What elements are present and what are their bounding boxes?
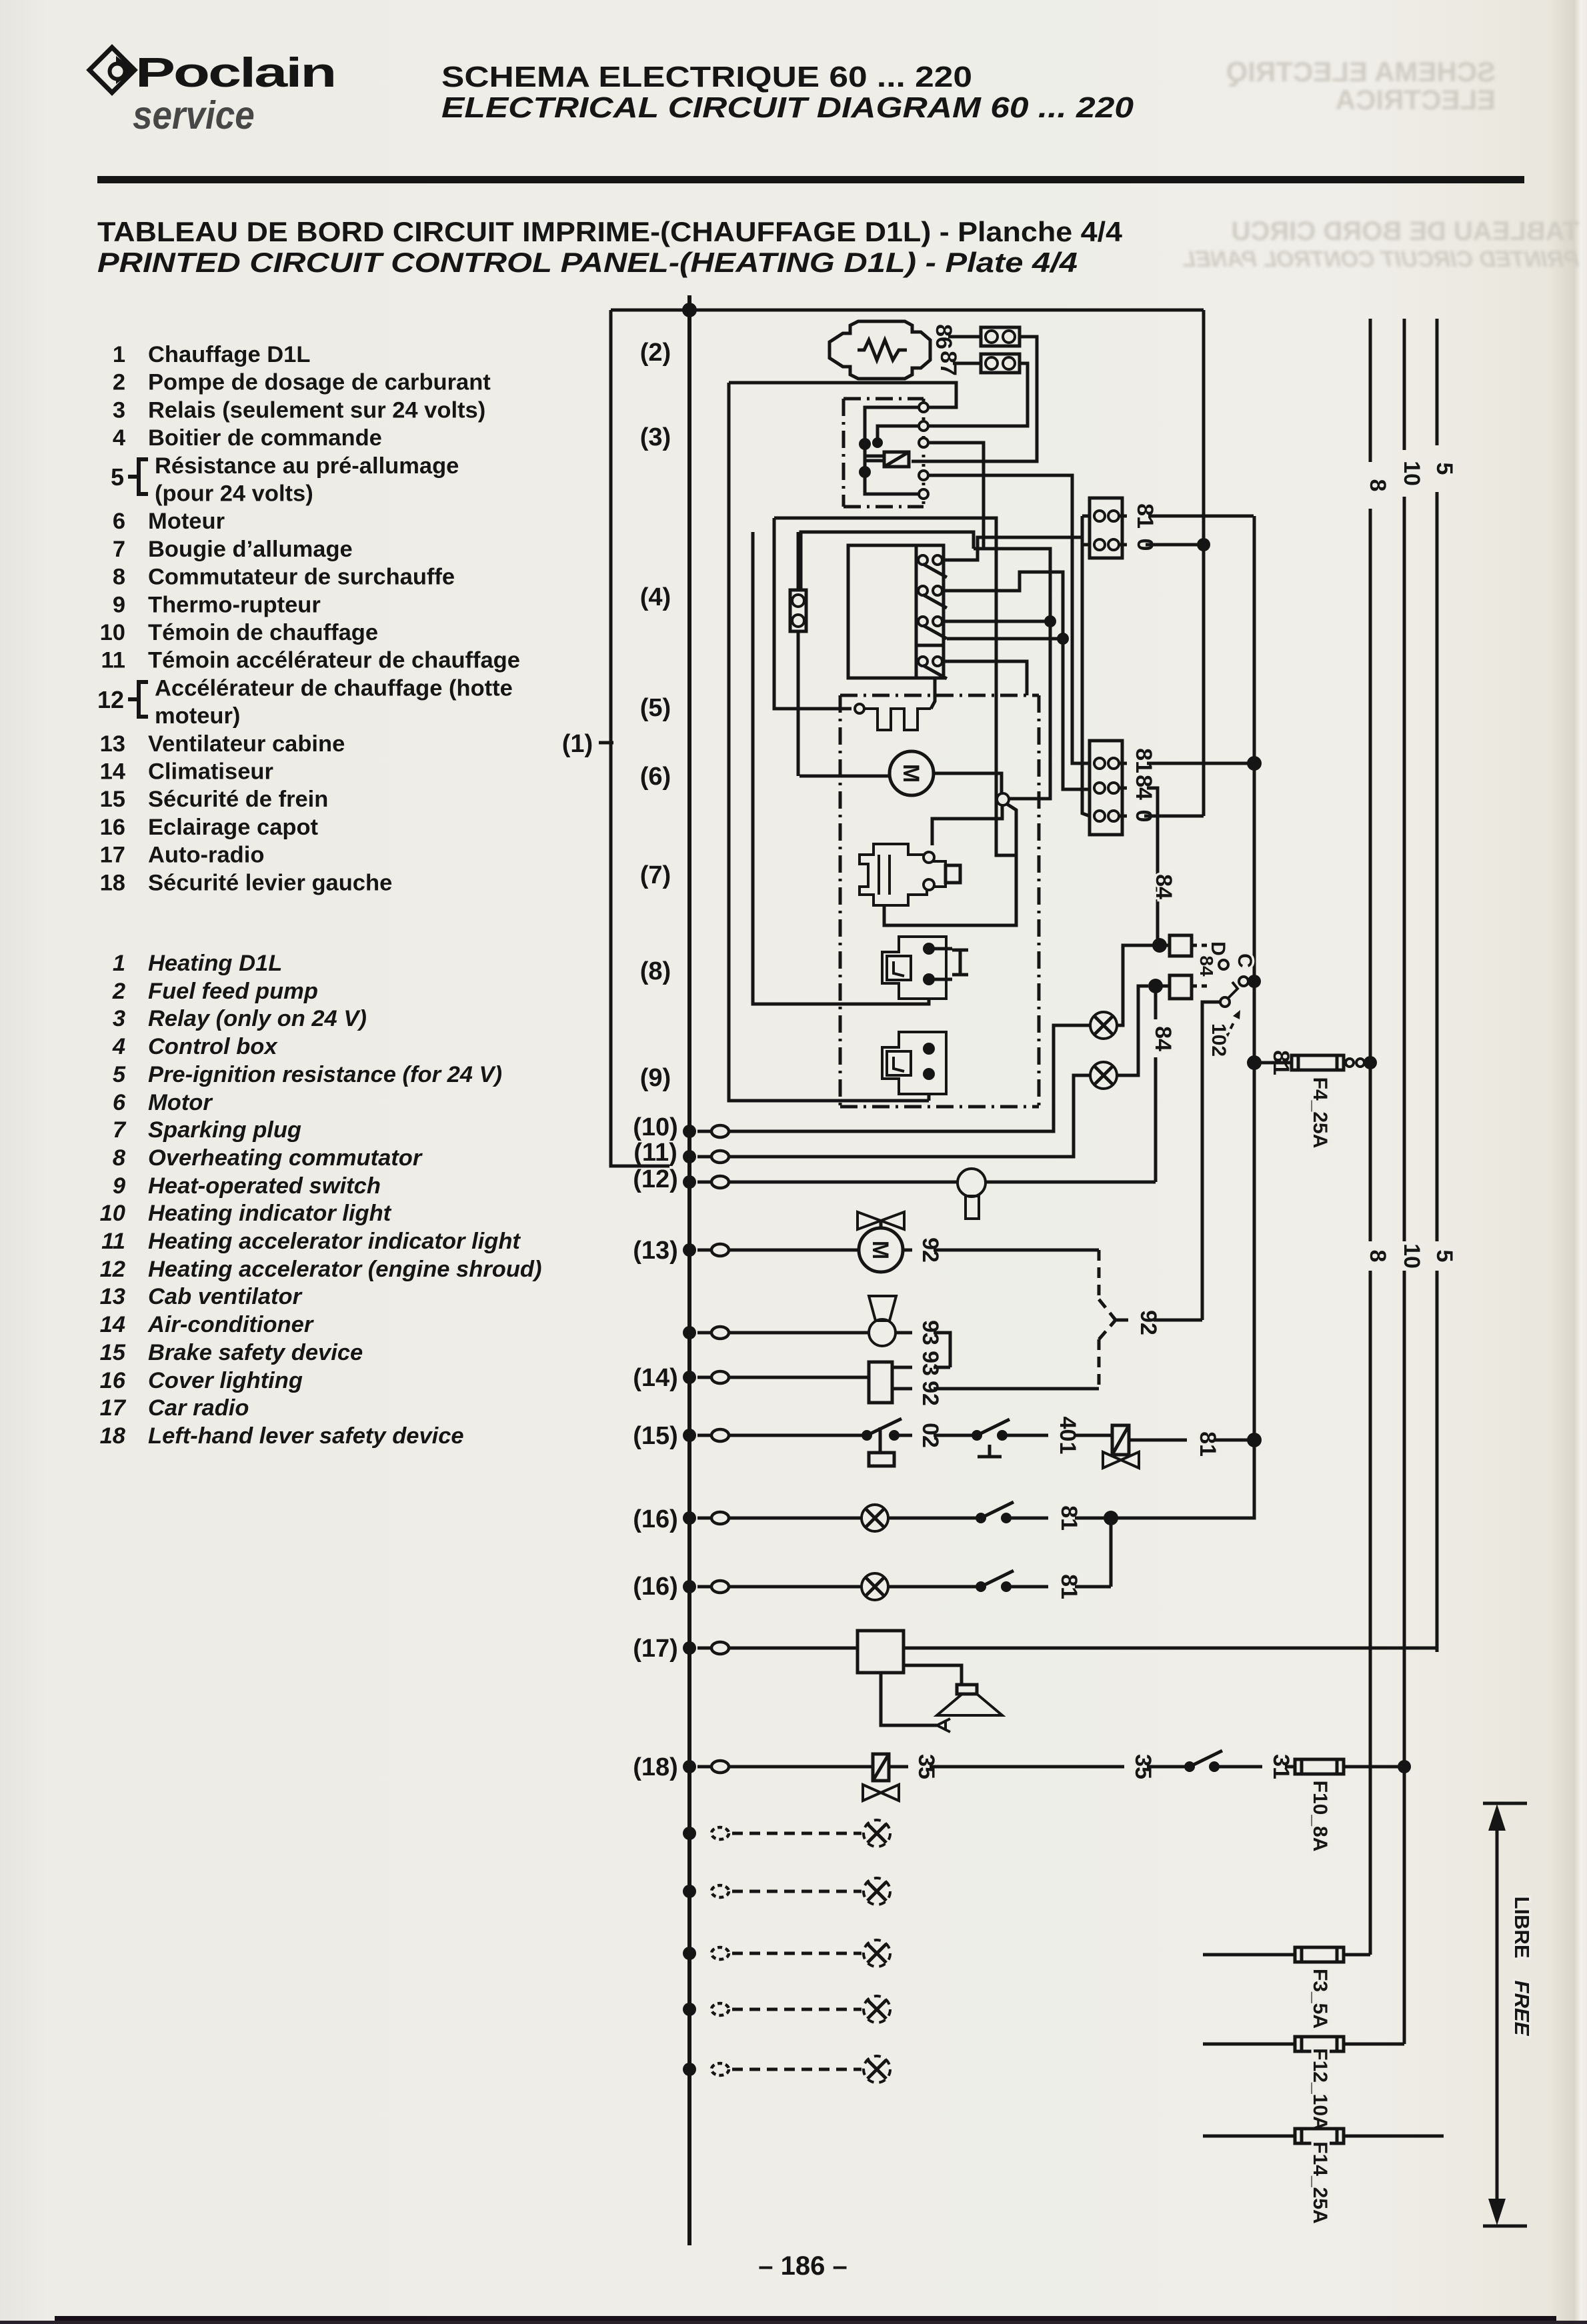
svg-text:11: 11 xyxy=(101,1229,125,1254)
svg-text:– 186 –: – 186 – xyxy=(758,2251,847,2281)
svg-text:Boitier de commande: Boitier de commande xyxy=(148,425,382,451)
svg-text:FREE: FREE xyxy=(1510,1981,1534,2037)
svg-text:93: 93 xyxy=(918,1351,943,1376)
svg-text:Commutateur de surchauffe: Commutateur de surchauffe xyxy=(148,565,455,590)
svg-text:Pre-ignition resistance (for 2: Pre-ignition resistance (for 24 V) xyxy=(148,1062,502,1087)
svg-text:(4): (4) xyxy=(640,583,671,611)
svg-text:16: 16 xyxy=(100,1368,126,1393)
svg-text:7: 7 xyxy=(113,537,125,562)
svg-text:8: 8 xyxy=(1365,1250,1390,1263)
svg-text:Témoin accélérateur de chauffa: Témoin accélérateur de chauffage xyxy=(148,648,520,673)
svg-text:(14): (14) xyxy=(633,1364,678,1392)
svg-text:14: 14 xyxy=(100,1312,125,1337)
svg-text:F14_25A: F14_25A xyxy=(1309,2141,1331,2223)
svg-text:5: 5 xyxy=(111,463,124,491)
svg-text:13: 13 xyxy=(100,1284,125,1309)
svg-text:10: 10 xyxy=(1399,461,1424,486)
svg-text:M: M xyxy=(868,1241,893,1259)
svg-text:18: 18 xyxy=(100,1423,126,1449)
svg-text:6: 6 xyxy=(113,1090,126,1115)
svg-text:12: 12 xyxy=(100,1257,125,1282)
svg-text:84: 84 xyxy=(1150,1026,1176,1051)
svg-text:13: 13 xyxy=(100,731,125,757)
svg-text:(13): (13) xyxy=(633,1237,678,1265)
svg-text:8: 8 xyxy=(113,1145,126,1171)
svg-text:Heating indicator light: Heating indicator light xyxy=(148,1201,392,1226)
svg-text:Left-hand lever safety device: Left-hand lever safety device xyxy=(148,1423,464,1449)
svg-text:102: 102 xyxy=(1208,1023,1230,1057)
svg-text:17: 17 xyxy=(100,843,125,868)
svg-text:14: 14 xyxy=(100,759,125,785)
svg-text:C: C xyxy=(1234,953,1256,968)
svg-text:Résistance au pré-allumage: Résistance au pré-allumage xyxy=(155,453,459,479)
svg-text:1: 1 xyxy=(113,342,125,367)
svg-text:(3): (3) xyxy=(640,423,671,451)
svg-text:(16): (16) xyxy=(633,1505,678,1533)
svg-text:5: 5 xyxy=(1432,1250,1457,1263)
svg-text:Motor: Motor xyxy=(148,1090,213,1115)
svg-text:(16): (16) xyxy=(633,1573,678,1601)
svg-text:5: 5 xyxy=(113,1062,126,1087)
svg-text:M: M xyxy=(898,764,924,783)
svg-text:Accélérateur de chauffage (hot: Accélérateur de chauffage (hotte xyxy=(155,675,513,701)
svg-text:92: 92 xyxy=(918,1381,943,1406)
svg-text:Heating D1L: Heating D1L xyxy=(148,951,282,976)
svg-text:84: 84 xyxy=(1196,955,1217,977)
svg-text:11: 11 xyxy=(101,648,125,673)
svg-text:5: 5 xyxy=(1432,463,1457,475)
svg-text:Fuel feed pump: Fuel feed pump xyxy=(148,979,318,1004)
svg-text:81: 81 xyxy=(1195,1431,1220,1457)
svg-text:12: 12 xyxy=(97,686,124,713)
svg-text:Heating accelerator (engine sh: Heating accelerator (engine shroud) xyxy=(148,1257,541,1282)
svg-text:(2): (2) xyxy=(640,339,671,367)
svg-text:Sparking plug: Sparking plug xyxy=(148,1117,301,1143)
svg-text:(12): (12) xyxy=(633,1165,678,1193)
svg-text:16: 16 xyxy=(100,815,125,840)
svg-text:Heat-operated switch: Heat-operated switch xyxy=(148,1173,381,1199)
svg-text:84: 84 xyxy=(1151,874,1176,899)
svg-text:Eclairage capot: Eclairage capot xyxy=(148,815,319,840)
svg-text:F3_5A: F3_5A xyxy=(1309,1969,1331,2029)
svg-text:Bougie d’allumage: Bougie d’allumage xyxy=(148,537,353,562)
svg-text:10: 10 xyxy=(100,1201,125,1226)
svg-text:18: 18 xyxy=(100,870,125,895)
svg-text:Thermo-rupteur: Thermo-rupteur xyxy=(148,592,321,617)
svg-text:Témoin de chauffage: Témoin de chauffage xyxy=(148,620,378,645)
svg-text:Overheating commutator: Overheating commutator xyxy=(148,1145,423,1171)
svg-text:1: 1 xyxy=(113,951,125,976)
svg-text:17: 17 xyxy=(100,1395,127,1421)
svg-text:(11): (11) xyxy=(633,1139,677,1167)
svg-text:9: 9 xyxy=(113,592,125,617)
svg-text:Pompe de dosage de carburant: Pompe de dosage de carburant xyxy=(148,370,491,395)
svg-text:Sécurité levier gauche: Sécurité levier gauche xyxy=(148,870,392,895)
svg-text:Auto-radio: Auto-radio xyxy=(148,843,264,868)
svg-text:moteur): moteur) xyxy=(155,703,240,729)
svg-text:Chauffage D1L: Chauffage D1L xyxy=(148,342,310,367)
svg-text:D: D xyxy=(1207,941,1229,956)
svg-text:2: 2 xyxy=(112,979,125,1004)
svg-text:Relay (only on 24 V): Relay (only on 24 V) xyxy=(148,1006,367,1031)
svg-text:ELECTRICAL CIRCUIT DIAGRAM 60: ELECTRICAL CIRCUIT DIAGRAM 60 ... 220 xyxy=(441,91,1134,124)
svg-text:8: 8 xyxy=(113,565,125,590)
svg-text:(10): (10) xyxy=(633,1113,678,1141)
svg-text:(7): (7) xyxy=(640,861,671,889)
svg-text:Heating accelerator indicator: Heating accelerator indicator light xyxy=(148,1229,521,1254)
svg-text:81: 81 xyxy=(1131,748,1156,773)
svg-text:SCHEMA ELECTRIQ: SCHEMA ELECTRIQ xyxy=(1226,56,1496,87)
svg-text:(9): (9) xyxy=(640,1064,671,1092)
svg-text:PRINTED CIRCUIT CONTROL PANEL-: PRINTED CIRCUIT CONTROL PANEL-(HEATING D… xyxy=(97,247,1078,278)
svg-text:10: 10 xyxy=(1399,1243,1424,1269)
svg-text:Sécurité de frein: Sécurité de frein xyxy=(148,787,328,812)
svg-text:9: 9 xyxy=(113,1173,126,1199)
svg-text:Relais (seulement sur 24 volts: Relais (seulement sur 24 volts) xyxy=(148,397,485,423)
svg-text:6: 6 xyxy=(113,509,125,534)
svg-text:Moteur: Moteur xyxy=(148,509,225,534)
svg-text:3: 3 xyxy=(113,1006,125,1031)
svg-text:Climatiseur: Climatiseur xyxy=(148,759,273,785)
svg-text:Brake safety device: Brake safety device xyxy=(148,1340,363,1365)
svg-text:(6): (6) xyxy=(640,763,671,791)
svg-text:Car radio: Car radio xyxy=(148,1395,249,1421)
svg-text:(15): (15) xyxy=(633,1422,678,1450)
svg-text:service: service xyxy=(133,93,255,137)
svg-text:92: 92 xyxy=(1136,1310,1161,1335)
svg-text:Ventilateur cabine: Ventilateur cabine xyxy=(148,731,345,757)
svg-text:TABLEAU DE BORD CIRCUIT IMPRIM: TABLEAU DE BORD CIRCUIT IMPRIME-(CHAUFFA… xyxy=(97,216,1123,247)
svg-text:15: 15 xyxy=(100,1340,126,1365)
svg-text:(pour 24 volts): (pour 24 volts) xyxy=(155,481,313,507)
svg-text:10: 10 xyxy=(100,620,125,645)
svg-text:Cab ventilator: Cab ventilator xyxy=(148,1284,303,1309)
svg-text:15: 15 xyxy=(100,787,125,812)
svg-text:8: 8 xyxy=(1365,479,1390,492)
svg-text:(18): (18) xyxy=(633,1753,678,1781)
svg-text:(17): (17) xyxy=(633,1635,678,1663)
svg-text:7: 7 xyxy=(113,1117,127,1143)
svg-text:LIBRE: LIBRE xyxy=(1510,1897,1534,1959)
svg-text:PRINTED CIRCUIT CONTROL PANEL: PRINTED CIRCUIT CONTROL PANEL xyxy=(1182,247,1579,272)
svg-text:Air-conditioner: Air-conditioner xyxy=(147,1312,314,1337)
svg-text:F12_10A: F12_10A xyxy=(1309,2048,1331,2130)
svg-text:F4_25A: F4_25A xyxy=(1309,1077,1331,1149)
svg-text:TABLEAU DE BORD CIRCU: TABLEAU DE BORD CIRCU xyxy=(1232,217,1579,246)
svg-text:ELECTRICA: ELECTRICA xyxy=(1336,84,1496,115)
svg-text:Cover lighting: Cover lighting xyxy=(148,1368,303,1393)
svg-text:F10_8A: F10_8A xyxy=(1309,1781,1331,1852)
svg-text:Control box: Control box xyxy=(148,1034,278,1059)
svg-text:SCHEMA ELECTRIQUE 60 ... 220: SCHEMA ELECTRIQUE 60 ... 220 xyxy=(441,61,972,93)
svg-text:(8): (8) xyxy=(640,957,671,985)
svg-text:4: 4 xyxy=(112,1034,125,1059)
svg-text:Poclain: Poclain xyxy=(135,50,335,96)
svg-text:(5): (5) xyxy=(640,694,671,722)
svg-text:2: 2 xyxy=(113,370,125,395)
svg-text:4: 4 xyxy=(113,425,125,451)
svg-text:(1): (1) xyxy=(562,730,593,758)
svg-text:3: 3 xyxy=(113,397,125,423)
